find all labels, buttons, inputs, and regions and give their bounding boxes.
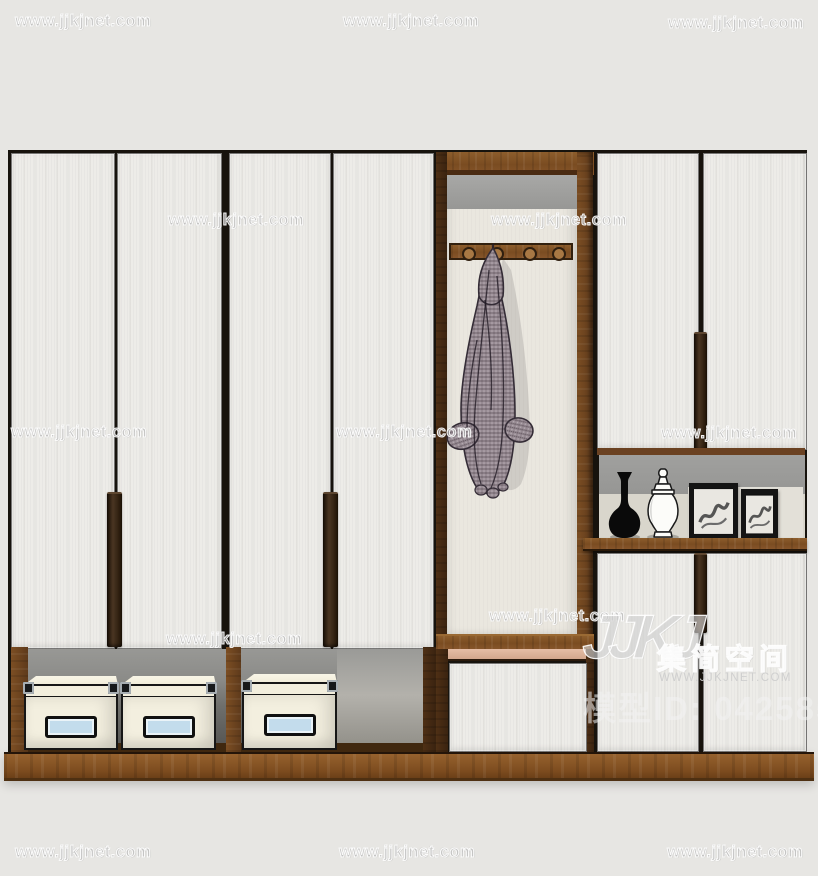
product-render-stage: www.jjkjnet.comwww.jjkjnet.comwww.jjkjne… [0,0,818,876]
compartment-partition [226,647,241,752]
watermark-text: www.jjkjnet.com [668,14,804,33]
box-latch-right [108,682,119,694]
coat-hood [479,248,504,305]
box-latch-left [120,682,131,694]
wardrobe-door-d1-top [597,153,699,450]
wardrobe-door-d2-bottom [703,553,807,752]
storage-box-3 [242,674,337,750]
box-latch-right [327,680,338,692]
hanging-fur-coat [441,240,545,500]
niche-right-frame [577,152,593,652]
watermark-text: www.jjkjnet.com [15,843,151,862]
black-vase [606,471,643,540]
frame-art [746,494,773,535]
box-lid-front [242,682,337,696]
drawer-left-partition [436,649,448,752]
photo-frame-large [689,483,738,540]
wardrobe-door-a1 [11,153,115,649]
wardrobe-door-b1 [229,153,331,649]
box-latch-right [206,682,217,694]
storage-box-2 [121,676,216,750]
lower-open-compartment [11,647,436,752]
frame-art [694,488,733,535]
niche-top-shadow-band [447,175,577,209]
door-handle-d-top [694,332,707,451]
wardrobe-door-d2-top [703,153,807,450]
box-label [264,714,316,736]
watermark-text: www.jjkjnet.com [667,843,803,862]
wardrobe-door-d1-bottom [597,553,699,752]
door-handle-b [323,492,338,647]
photo-frame-small [741,489,778,540]
coat-hook-4 [552,247,566,261]
box-lid-front [121,684,216,698]
door-handle-a [107,492,122,647]
wardrobe-drawer-front [449,663,587,752]
watermark-text: www.jjkjnet.com [339,843,475,862]
box-lid-front [24,684,118,698]
box-label [45,716,97,738]
white-jar [643,468,683,540]
compartment-right-wall [423,647,436,752]
storage-box-1 [24,676,118,750]
compartment-back-empty [337,649,423,752]
niche-floor-shelf [436,634,594,649]
display-niche-top-trim [597,448,805,455]
display-shelf-board [583,538,807,551]
box-latch-left [241,680,252,692]
wardrobe-door-a2 [117,153,222,649]
watermark-text: www.jjkjnet.com [343,12,479,31]
wardrobe-door-b2 [333,153,434,649]
niche-floor-trim [445,649,590,661]
box-latch-left [23,682,34,694]
box-label [143,716,195,738]
watermark-text: www.jjkjnet.com [15,12,151,31]
drawer-right-partition [586,649,594,752]
door-handle-d-bottom [694,553,707,633]
wardrobe-base-plinth [4,752,814,781]
